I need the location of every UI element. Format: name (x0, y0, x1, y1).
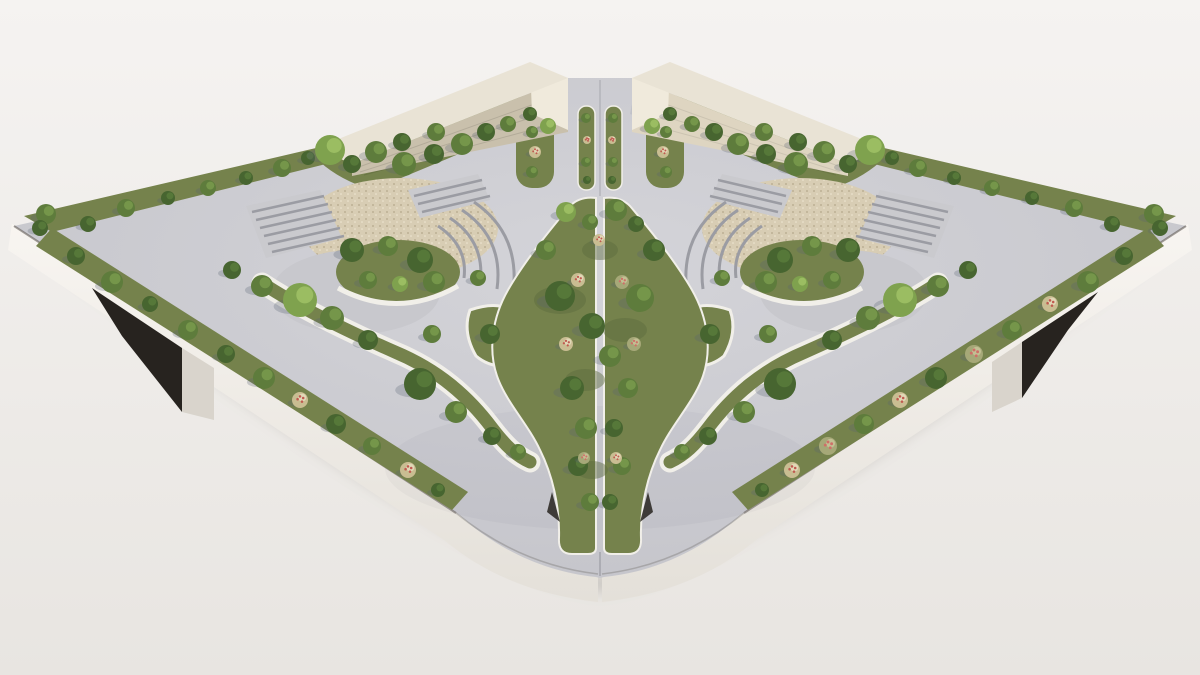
shrub-highlight (612, 114, 617, 119)
tree-highlight (544, 242, 554, 252)
flower-dot (794, 467, 797, 470)
bed-patch (603, 318, 647, 342)
flower-dot (301, 400, 304, 403)
shrub-highlight (38, 222, 46, 230)
flower-dot (536, 152, 538, 154)
flower-dot (410, 467, 413, 470)
tree-highlight (614, 201, 625, 212)
shrub-highlight (166, 192, 173, 199)
flower-dot (299, 395, 302, 398)
tree-highlight (793, 154, 805, 166)
shrub-highlight (668, 108, 675, 115)
tree-highlight (608, 347, 619, 358)
tree-highlight (588, 495, 597, 504)
tree-highlight (488, 326, 498, 336)
tree-highlight (44, 206, 54, 216)
shrub-highlight (634, 218, 642, 226)
tree-highlight (564, 204, 574, 214)
tree-highlight (349, 240, 361, 252)
flower-dot (636, 341, 638, 343)
tree-highlight (327, 138, 342, 153)
tree-highlight (777, 250, 790, 263)
flower-dot (567, 344, 569, 346)
flower-dot (623, 282, 625, 284)
tree-highlight (766, 327, 775, 336)
flower-dot (565, 340, 567, 342)
shrub-highlight (436, 484, 443, 491)
shrub-highlight (1110, 218, 1118, 226)
tree-highlight (810, 238, 820, 248)
tree-highlight (334, 416, 344, 426)
flower-dot (631, 342, 633, 344)
shrub-highlight (244, 172, 251, 179)
shrub-highlight (206, 182, 214, 190)
tree-highlight (1086, 273, 1097, 284)
tree-highlight (708, 326, 718, 336)
tree-highlight (366, 332, 376, 342)
shrub-highlight (760, 484, 767, 491)
shrub-highlight (665, 167, 671, 173)
flower-dot (404, 468, 407, 471)
tree-highlight (862, 416, 872, 426)
flower-dot (621, 278, 623, 280)
shrub-highlight (546, 120, 554, 128)
tree-highlight (652, 241, 663, 252)
flower-dot (1049, 299, 1052, 302)
tree-highlight (386, 238, 396, 248)
shrub-highlight (586, 177, 590, 181)
tree-highlight (230, 263, 239, 272)
shrub-highlight (516, 446, 524, 454)
tree-highlight (867, 138, 882, 153)
flower-dot (585, 456, 587, 458)
flower-dot (976, 350, 979, 353)
tree-highlight (490, 429, 499, 438)
tree-highlight (742, 403, 753, 414)
shrub-highlight (531, 127, 537, 133)
shrub-highlight (890, 152, 897, 159)
flower-dot (409, 470, 412, 473)
tree-highlight (434, 125, 443, 134)
shrub-highlight (952, 172, 959, 179)
shrub-highlight (588, 216, 596, 224)
flower-dot (600, 238, 602, 240)
flower-dot (829, 446, 832, 449)
shrub-highlight (1030, 192, 1037, 199)
tree-highlight (764, 273, 775, 284)
tree-highlight (916, 161, 925, 170)
tree-highlight (1122, 249, 1131, 258)
shrub-highlight (148, 298, 156, 306)
shrub-highlight (650, 120, 658, 128)
tree-highlight (589, 316, 602, 329)
tree-highlight (936, 277, 947, 288)
tree-highlight (401, 154, 413, 166)
tree-highlight (416, 371, 432, 387)
tree-highlight (1152, 206, 1162, 216)
flower-dot (624, 279, 626, 281)
tree-highlight (830, 332, 840, 342)
shrub-highlight (531, 167, 537, 173)
flower-dot (617, 456, 619, 458)
tree-highlight (432, 146, 442, 156)
flower-dot (613, 138, 615, 140)
shrub-highlight (665, 127, 671, 133)
flower-dot (600, 240, 602, 242)
tree-highlight (845, 240, 857, 252)
tree-highlight (110, 273, 121, 284)
tree-highlight (557, 284, 572, 299)
flower-dot (664, 152, 666, 154)
scene-svg (0, 0, 1200, 675)
shrub-highlight (585, 114, 590, 119)
shrub-highlight (611, 177, 615, 181)
shrub-highlight (476, 272, 484, 280)
tree-highlight (400, 135, 409, 144)
tree-highlight (830, 273, 839, 282)
flower-dot (827, 441, 830, 444)
shrub-highlight (680, 446, 688, 454)
flower-dot (575, 278, 577, 280)
tree-highlight (224, 347, 233, 356)
tree-highlight (712, 125, 721, 134)
flower-dot (296, 398, 299, 401)
flower-dot (612, 140, 614, 142)
shrub-highlight (608, 496, 616, 504)
flower-dot (1046, 302, 1049, 305)
flower-dot (896, 398, 899, 401)
flower-dot (579, 280, 581, 282)
flower-dot (615, 454, 617, 456)
tree-highlight (366, 273, 375, 282)
flower-dot (793, 470, 796, 473)
tree-highlight (74, 249, 83, 258)
flower-dot (970, 352, 973, 355)
flower-dot (568, 341, 570, 343)
shrub-highlight (398, 278, 406, 286)
tree-highlight (280, 161, 289, 170)
tree-highlight (432, 273, 443, 284)
flower-dot (536, 150, 538, 152)
tree-highlight (934, 369, 945, 380)
tree-highlight (966, 263, 975, 272)
tree-highlight (260, 277, 271, 288)
tree-highlight (374, 143, 385, 154)
shrub-highlight (612, 158, 617, 163)
tree-highlight (430, 327, 439, 336)
tree-highlight (186, 322, 196, 332)
shrub-highlight (585, 158, 590, 163)
flower-dot (563, 342, 565, 344)
flower-dot (613, 456, 615, 458)
flower-dot (302, 397, 305, 400)
flower-dot (407, 465, 410, 468)
tree-highlight (124, 201, 133, 210)
shrub-highlight (798, 278, 806, 286)
shrub-highlight (720, 272, 728, 280)
flower-dot (587, 140, 589, 142)
flower-dot (580, 277, 582, 279)
flower-dot (588, 138, 590, 140)
tree-highlight (1010, 322, 1020, 332)
flower-dot (830, 442, 833, 445)
tree-highlight (584, 419, 595, 430)
flower-dot (619, 280, 621, 282)
flower-dot (596, 238, 598, 240)
tree-highlight (736, 135, 747, 146)
flower-dot (660, 150, 662, 152)
tree-highlight (796, 135, 805, 144)
tree-highlight (454, 403, 465, 414)
tree-highlight (846, 157, 855, 166)
tree-highlight (612, 421, 621, 430)
flower-dot (899, 395, 902, 398)
flower-dot (662, 148, 664, 150)
tree-highlight (296, 286, 313, 303)
tree-highlight (1072, 201, 1081, 210)
shrub-highlight (690, 118, 698, 126)
flower-dot (973, 349, 976, 352)
flower-dot (633, 340, 635, 342)
flower-dot (901, 400, 904, 403)
tree-highlight (637, 287, 651, 301)
tree-highlight (822, 143, 833, 154)
flower-dot (598, 236, 600, 238)
tree-highlight (484, 125, 493, 134)
shrub-highlight (1158, 222, 1166, 230)
tree-highlight (350, 157, 359, 166)
flower-dot (617, 458, 619, 460)
flower-dot (975, 354, 978, 357)
tree-highlight (626, 380, 636, 390)
flower-dot (664, 150, 666, 152)
flower-dot (635, 344, 637, 346)
tree-highlight (896, 286, 913, 303)
shrub-highlight (506, 118, 514, 126)
tree-highlight (460, 135, 471, 146)
tree-highlight (262, 369, 273, 380)
flower-dot (581, 456, 583, 458)
tree-highlight (329, 308, 341, 320)
tree-highlight (776, 371, 792, 387)
tree-highlight (370, 439, 379, 448)
render-stage (0, 0, 1200, 675)
tree-highlight (417, 250, 430, 263)
flower-dot (585, 458, 587, 460)
flower-dot (824, 444, 827, 447)
flower-dot (788, 468, 791, 471)
shrub-highlight (528, 108, 535, 115)
flower-dot (1051, 304, 1054, 307)
tree-highlight (762, 125, 771, 134)
flower-dot (532, 150, 534, 152)
shrub-highlight (86, 218, 94, 226)
flower-dot (583, 454, 585, 456)
flower-dot (791, 465, 794, 468)
flower-dot (1052, 301, 1055, 304)
shrub-highlight (990, 182, 998, 190)
flower-dot (577, 276, 579, 278)
flower-dot (902, 397, 905, 400)
tree-highlight (569, 378, 581, 390)
tree-highlight (865, 308, 877, 320)
tree-highlight (764, 146, 774, 156)
flower-dot (534, 148, 536, 150)
tree-highlight (706, 429, 715, 438)
